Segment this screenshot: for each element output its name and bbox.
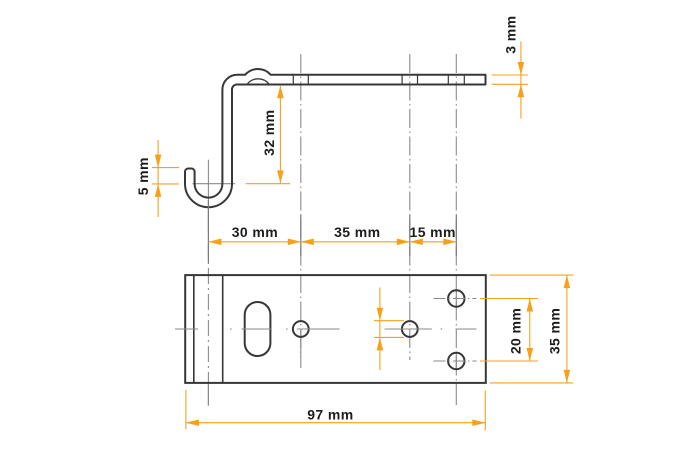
svg-text:97 mm: 97 mm [307, 406, 353, 422]
svg-text:3 mm: 3 mm [503, 16, 519, 54]
svg-text:35 mm: 35 mm [546, 308, 562, 354]
svg-text:15 mm: 15 mm [410, 224, 456, 240]
svg-text:30 mm: 30 mm [232, 224, 278, 240]
svg-text:35 mm: 35 mm [334, 224, 380, 240]
svg-text:32 mm: 32 mm [261, 110, 277, 156]
svg-text:5 mm: 5 mm [135, 157, 151, 195]
svg-text:20 mm: 20 mm [507, 308, 523, 354]
